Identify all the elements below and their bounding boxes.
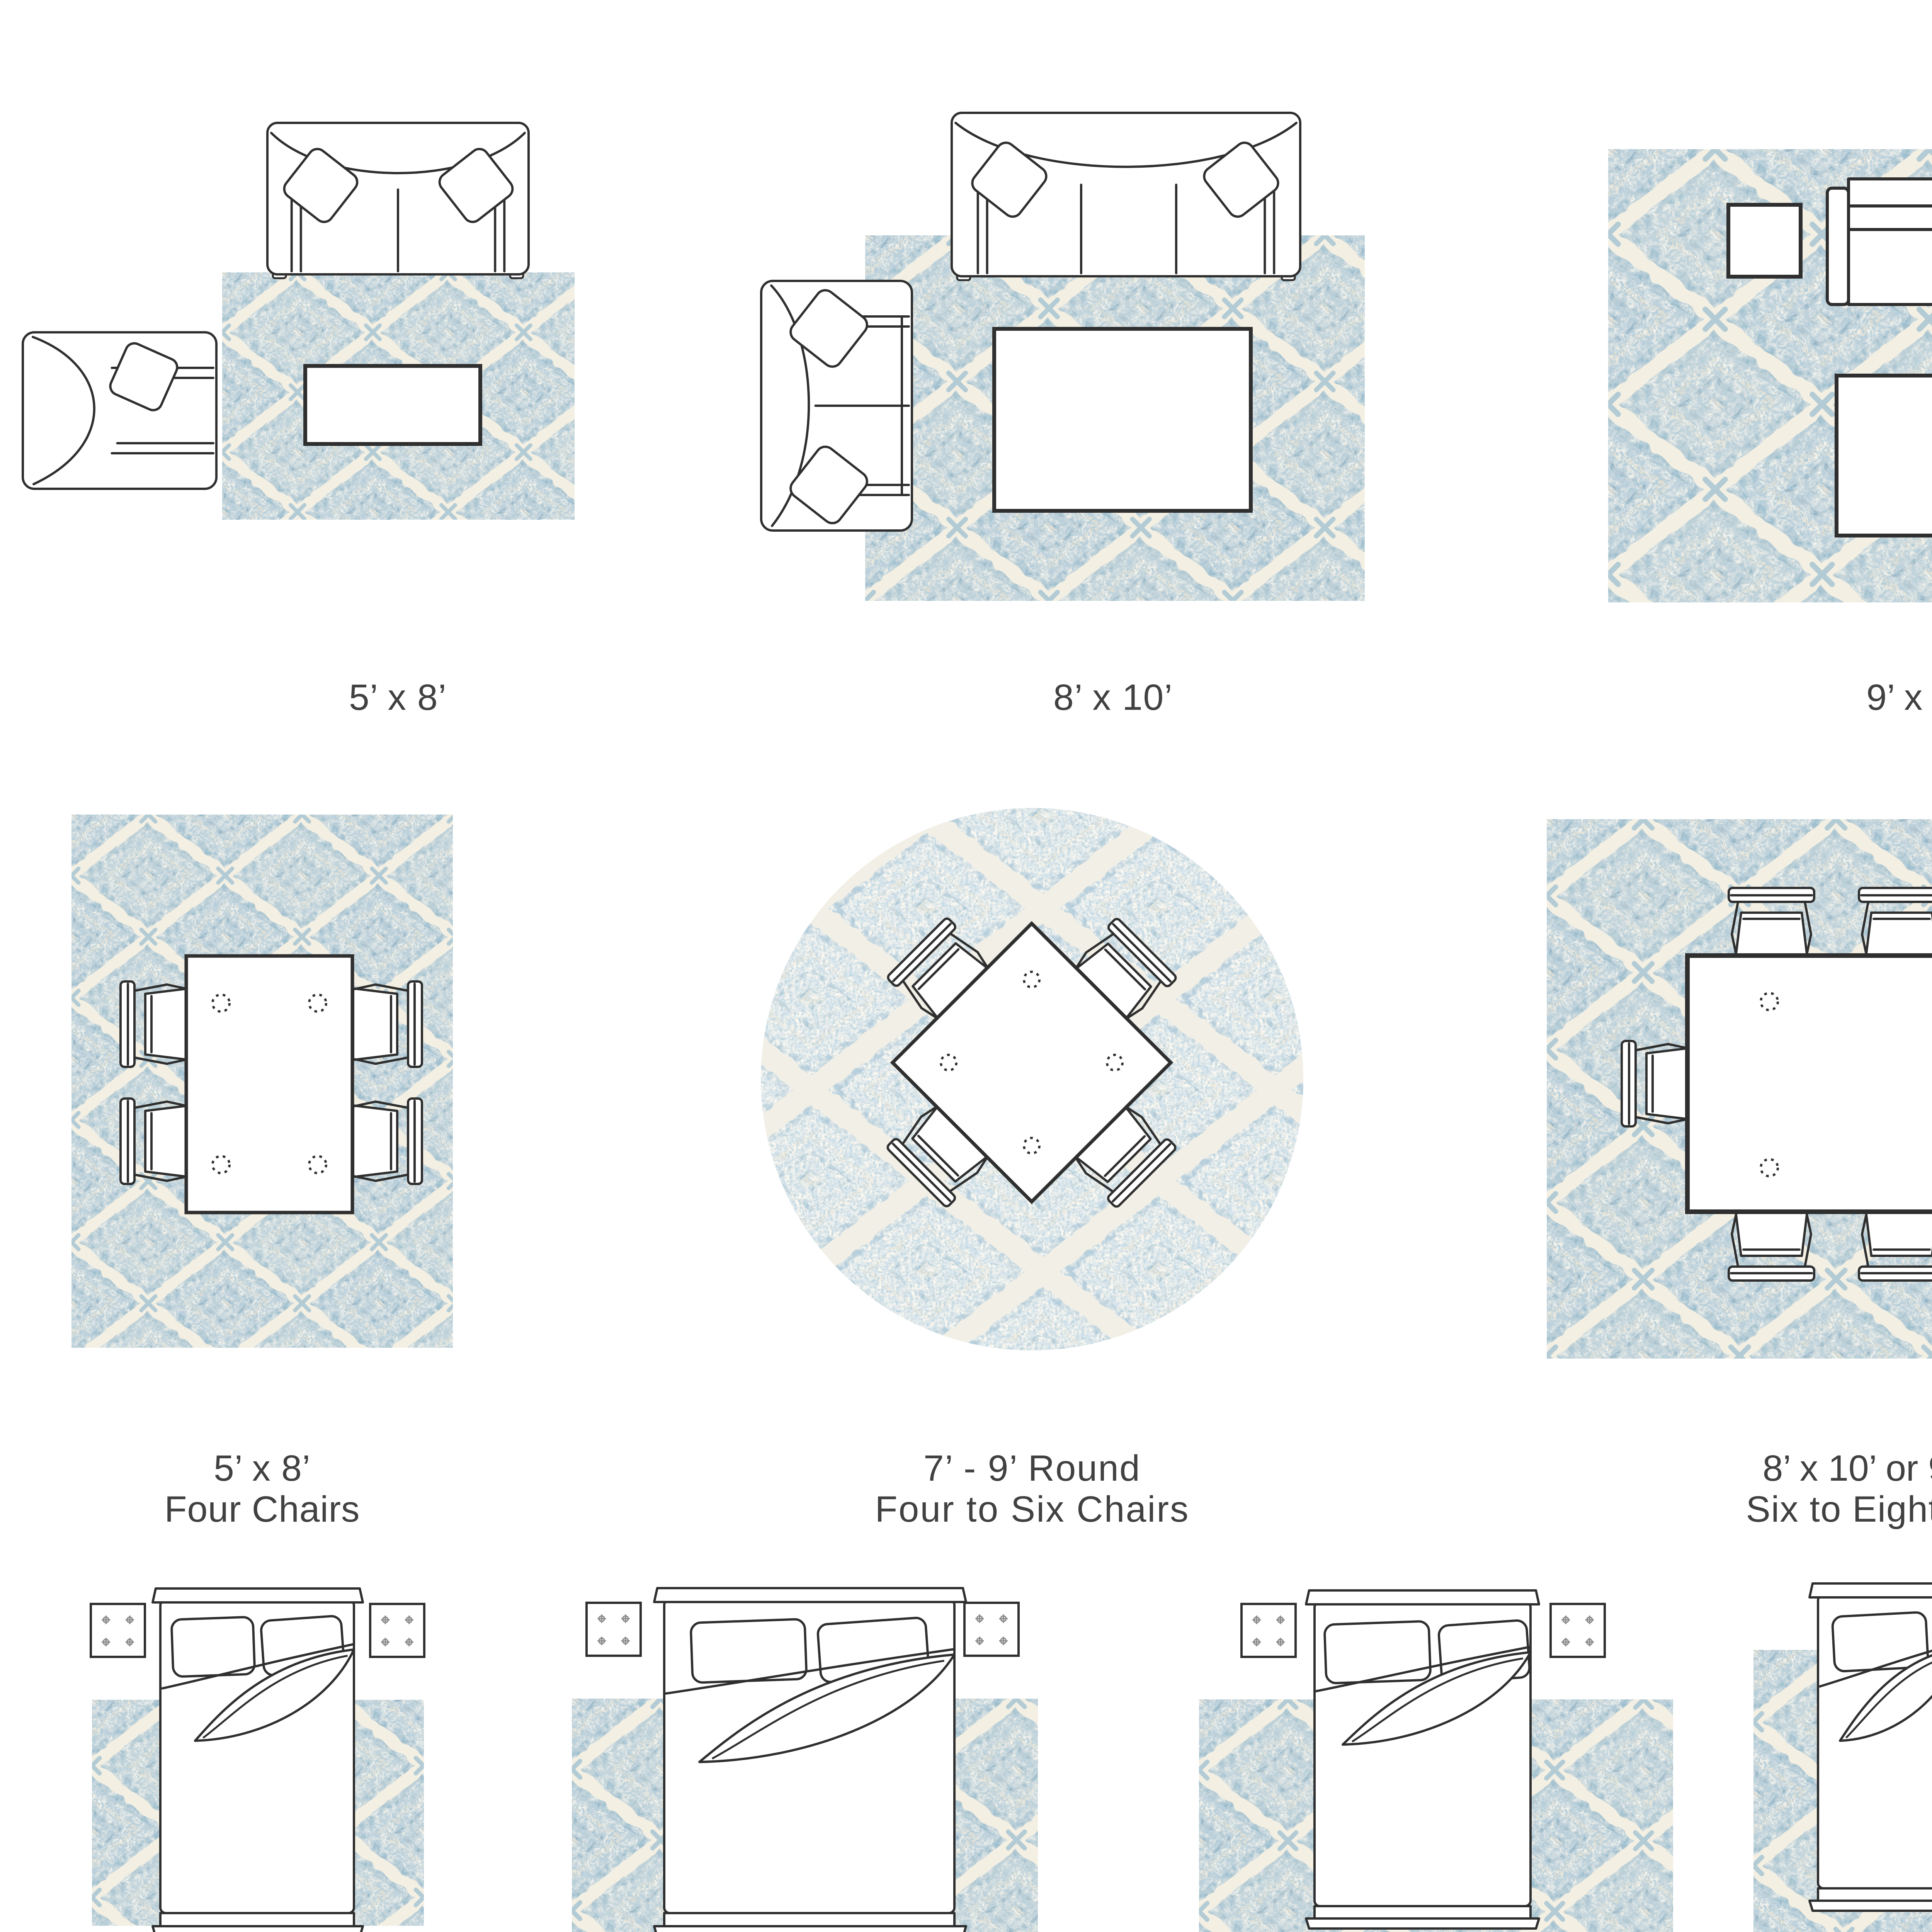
svg-text:8’ x 10’: 8’ x 10’ — [1053, 677, 1172, 718]
svg-text:7’ - 9’ Round: 7’ - 9’ Round — [923, 1448, 1140, 1489]
svg-text:5’ x 8’: 5’ x 8’ — [214, 1448, 310, 1489]
svg-text:8’ x 10’ or 9’ x 12’: 8’ x 10’ or 9’ x 12’ — [1763, 1448, 1932, 1489]
svg-text:Four Chairs: Four Chairs — [165, 1489, 360, 1530]
svg-text:9’ x 12’: 9’ x 12’ — [1866, 677, 1932, 718]
svg-text:5’ x 8’: 5’ x 8’ — [349, 677, 446, 718]
svg-text:Four to Six Chairs: Four to Six Chairs — [875, 1489, 1189, 1530]
svg-text:Six to Eight Chairs: Six to Eight Chairs — [1746, 1489, 1932, 1530]
